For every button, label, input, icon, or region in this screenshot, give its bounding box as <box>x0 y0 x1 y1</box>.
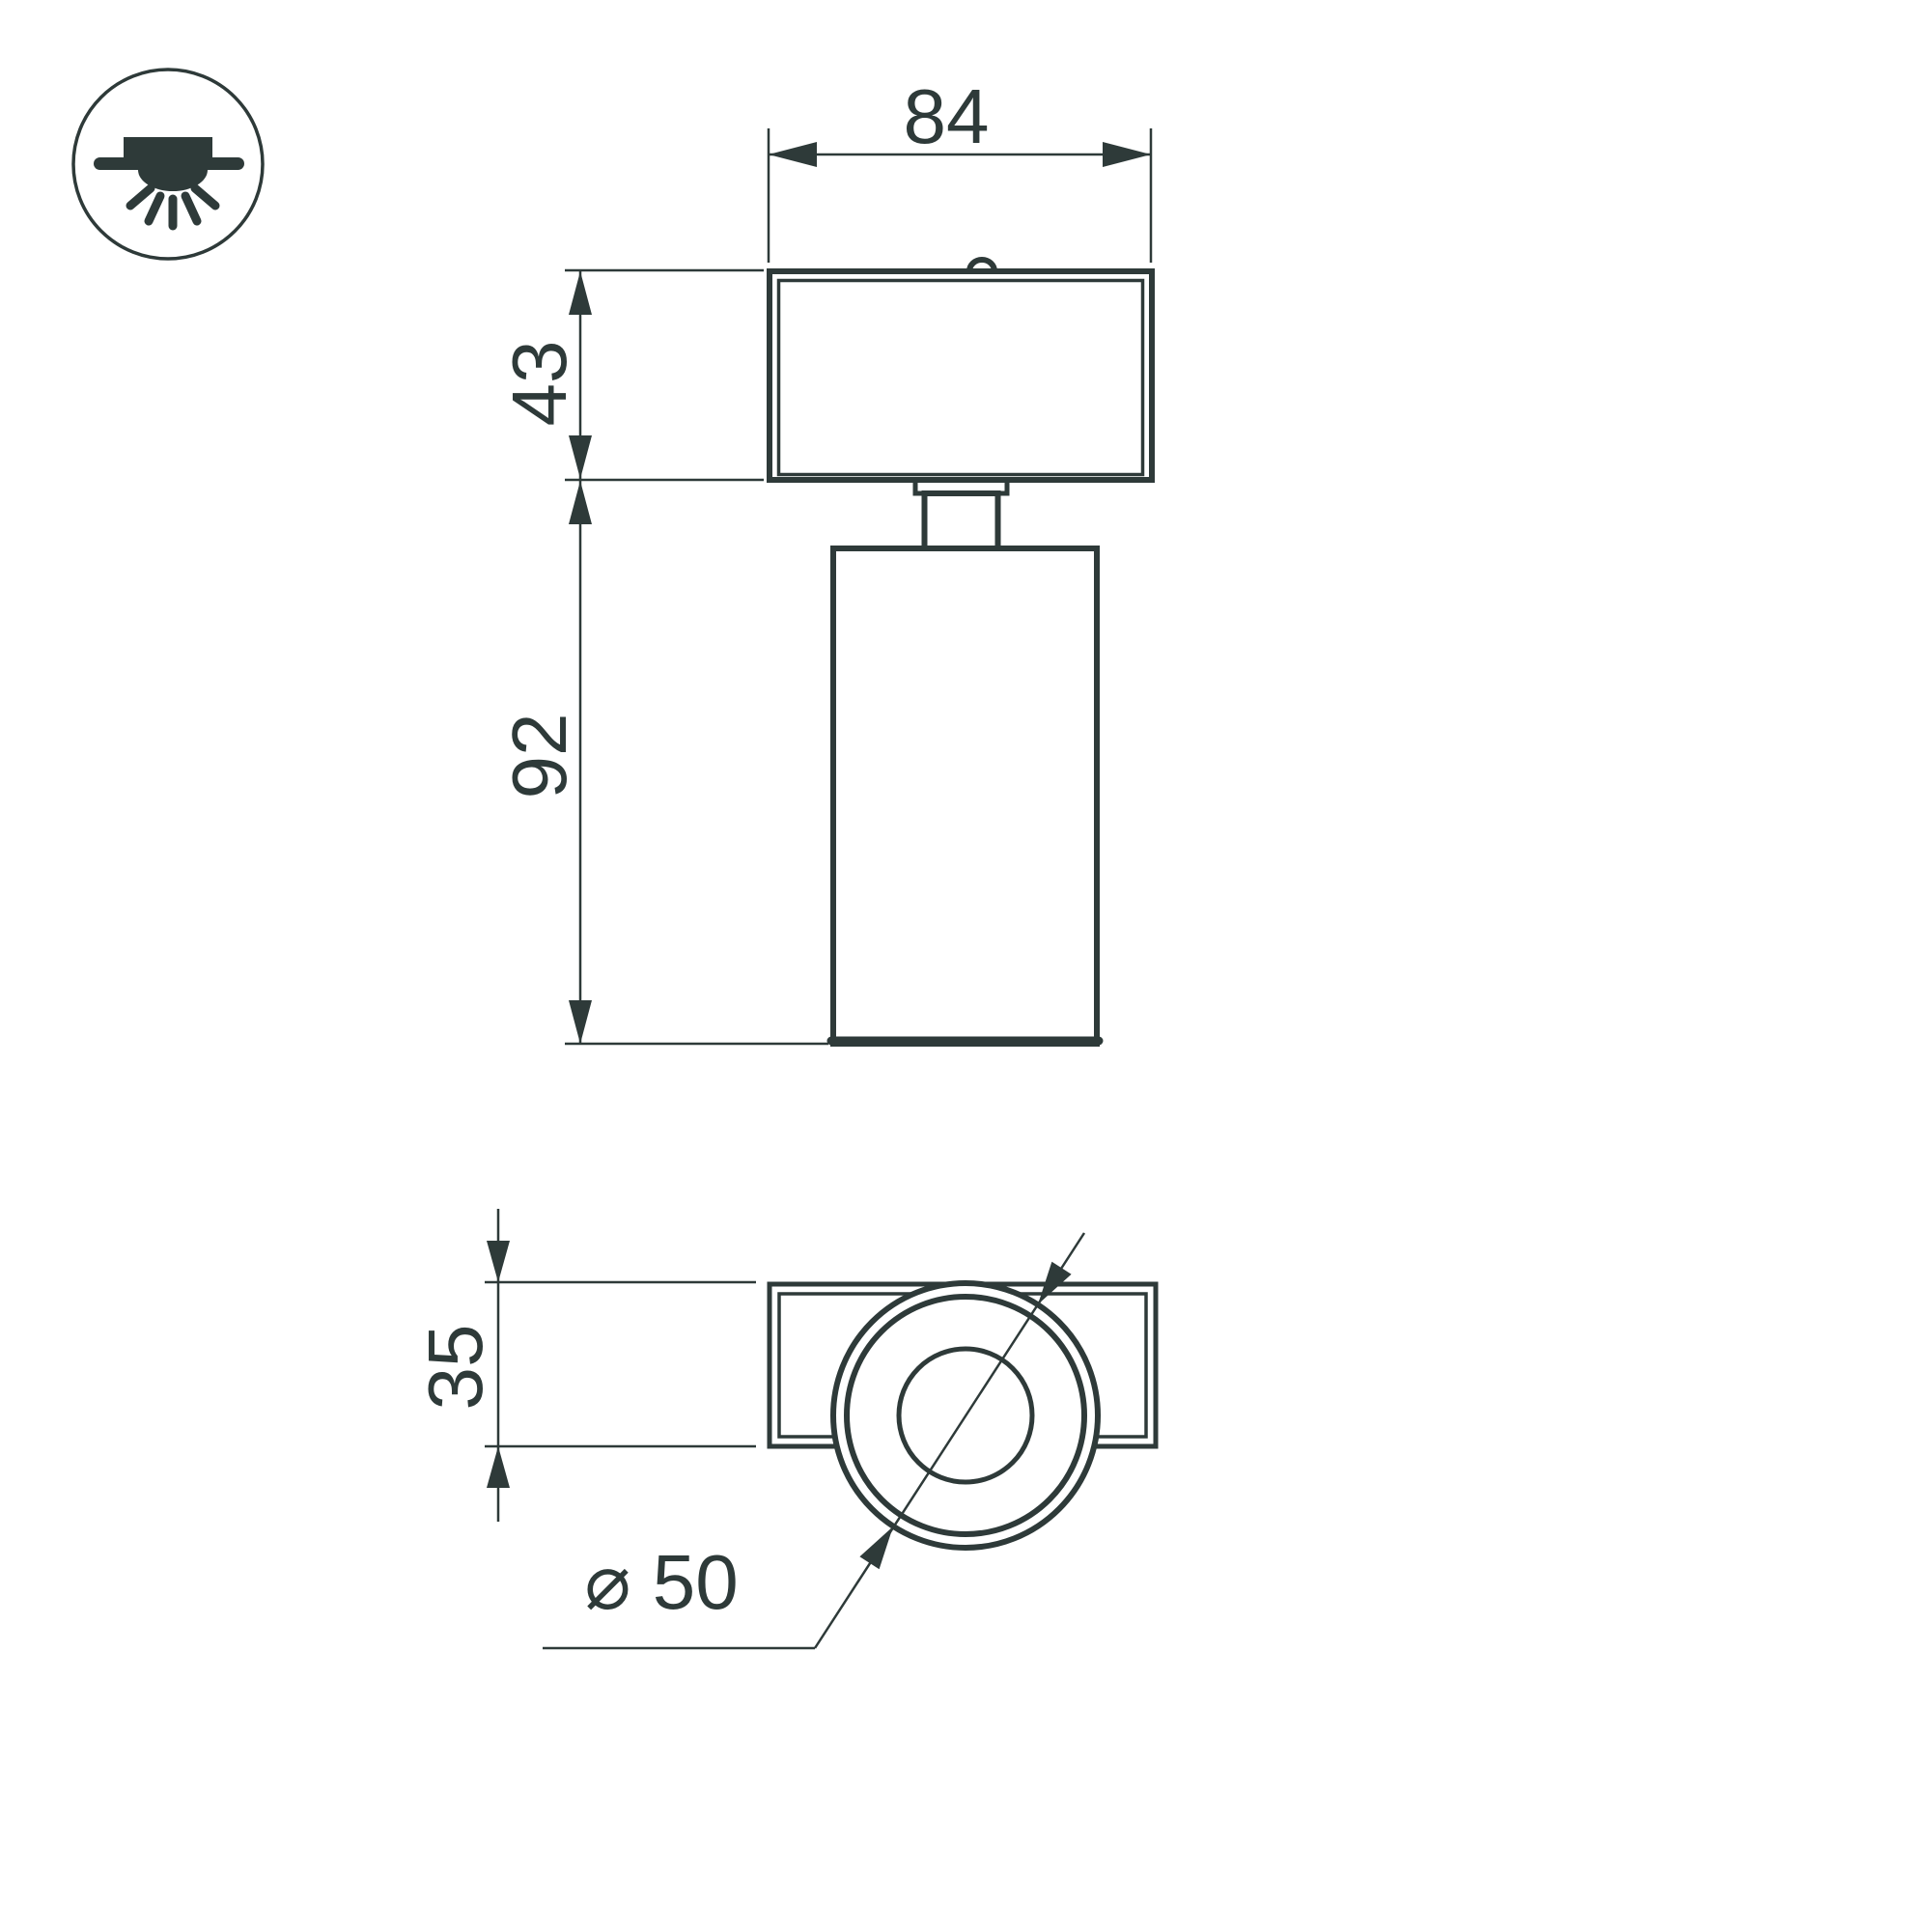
arrowhead-down <box>569 1000 592 1044</box>
arrowhead-down <box>487 1241 510 1282</box>
dim-base-height-label: 43 <box>496 341 582 427</box>
mounting-box-outline <box>770 271 1152 480</box>
dim-front-body-height: 92 <box>496 480 828 1044</box>
arrowhead-up <box>569 481 592 524</box>
cylinder-body <box>833 548 1097 1044</box>
icon-ceiling-bar <box>94 157 244 170</box>
arrowhead-up <box>487 1446 510 1488</box>
arrowhead-down <box>569 435 592 479</box>
icon-mount-box <box>124 137 212 160</box>
arrowhead-left <box>769 142 817 167</box>
drawing-canvas: 84 43 92 35 ⌀ 50 <box>0 0 1932 1932</box>
front-view <box>770 260 1152 1044</box>
dim-front-base-height: 43 <box>496 270 764 480</box>
surface-mount-downlight-icon <box>73 70 263 259</box>
swivel-stem <box>925 493 998 548</box>
top-view <box>770 1283 1156 1548</box>
dim-width-label: 84 <box>904 73 990 159</box>
dim-diameter-label: ⌀ 50 <box>584 1539 738 1625</box>
arrowhead-right <box>1103 142 1151 167</box>
arrowhead-up <box>569 271 592 315</box>
dim-base-depth-label: 35 <box>412 1325 498 1411</box>
mounting-box-inner-line <box>779 281 1143 475</box>
dim-top-base-depth: 35 <box>412 1209 756 1522</box>
arrowhead-lower <box>859 1526 893 1569</box>
dim-body-height-label: 92 <box>496 714 582 799</box>
icon-light-rays <box>130 188 215 226</box>
dimension-drawing-sheet: 84 43 92 35 ⌀ 50 <box>0 0 1932 1932</box>
dim-front-width: 84 <box>769 73 1151 263</box>
